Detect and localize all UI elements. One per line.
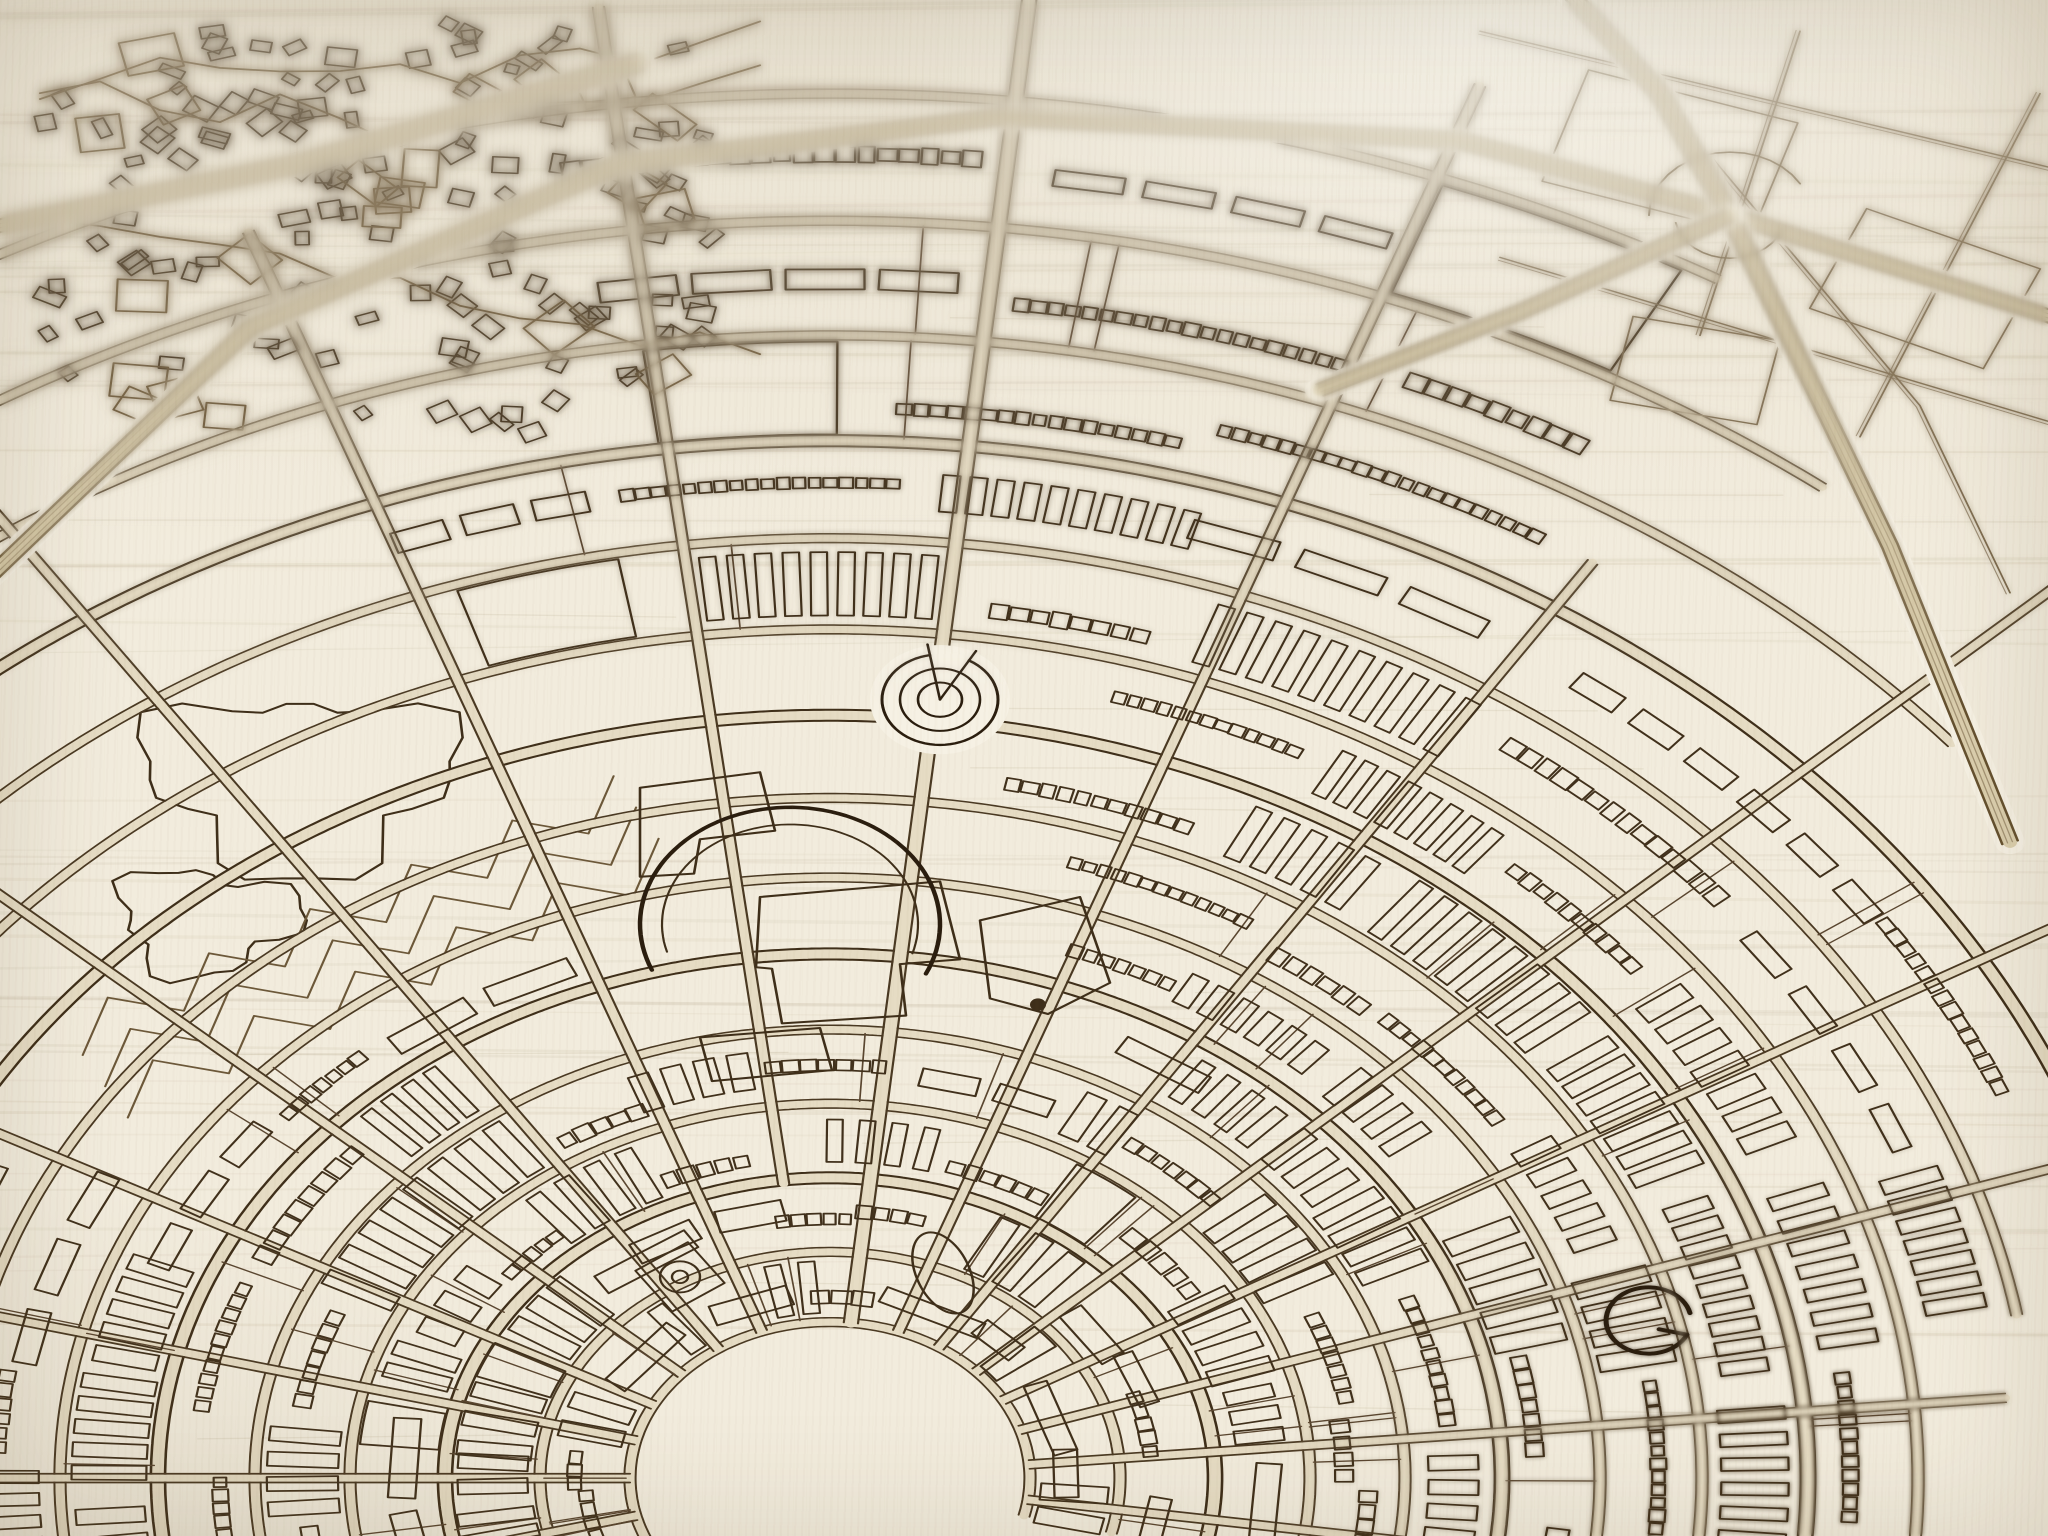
map-art <box>0 0 2048 1536</box>
photo-wooden-laser-engraved-city-map: Close-up photo of a city map laser-burne… <box>0 0 2048 1536</box>
map-engraving-base <box>0 0 2048 1536</box>
plaza-dot <box>1030 998 1046 1010</box>
